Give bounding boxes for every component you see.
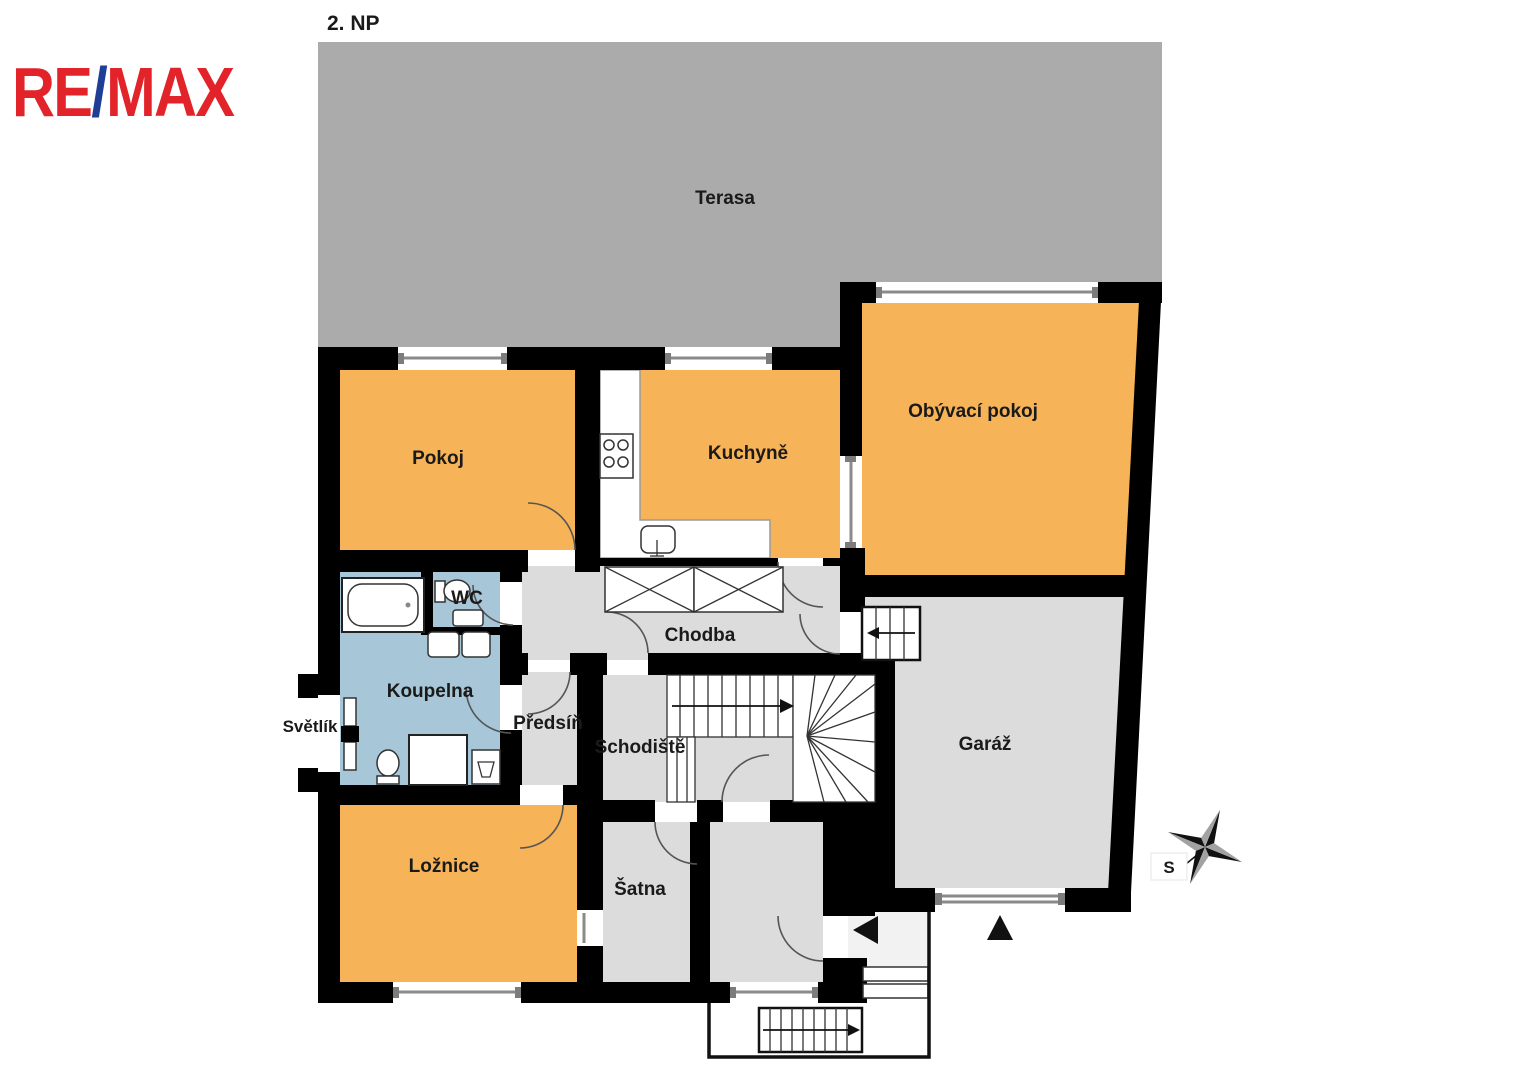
koupelna-label: Koupelna: [387, 681, 474, 702]
satna-label: Šatna: [614, 878, 666, 900]
stove-icon: [600, 434, 633, 478]
shower-icon: [409, 735, 467, 785]
brand-logo: RE/MAX: [12, 52, 235, 131]
window-obyvaci-pokoj: [876, 282, 1098, 303]
svetlik-label: Světlík: [283, 717, 338, 736]
loznice-label: Ložnice: [409, 856, 480, 877]
chodba-label: Chodba: [665, 625, 736, 646]
compass-north-label: S: [1163, 858, 1174, 877]
svg-text:RE/MAX: RE/MAX: [12, 52, 235, 131]
schodiste-label: Schodiště: [595, 737, 686, 758]
window-bottom-room: [730, 982, 818, 1003]
floor-plan-drawing: S 2. NP Terasa Pokoj Kuchyně Obývací pok…: [0, 0, 1527, 1080]
floor-title: 2. NP: [327, 12, 380, 35]
garage-door: [935, 888, 1065, 912]
floor-plan-page: S 2. NP Terasa Pokoj Kuchyně Obývací pok…: [0, 0, 1527, 1080]
garage-entry-triangle: [987, 915, 1013, 940]
garage-landing-stair: [862, 607, 920, 660]
obyvaci-pokoj-area: [862, 303, 1140, 575]
window-loznice: [393, 982, 521, 1003]
loznice-area: [340, 805, 577, 982]
kitchen-sink-icon: [641, 526, 675, 556]
garaz-label: Garáž: [959, 734, 1012, 755]
room-areas: [318, 42, 1162, 982]
wc-label: WC: [451, 588, 483, 609]
bathroom-toilet-icon: [377, 750, 399, 784]
logo-max: MAX: [106, 52, 235, 131]
wardrobe: [605, 567, 783, 612]
logo-re: RE: [12, 52, 91, 131]
predsin-label: Předsíň: [513, 713, 583, 734]
compass-star-icon: [1153, 795, 1257, 899]
kuchyne-label: Kuchyně: [708, 443, 788, 464]
obyvaci-pokoj-label: Obývací pokoj: [908, 401, 1038, 422]
entrance-markers: [853, 915, 1013, 944]
compass: S: [1151, 795, 1257, 899]
window-pokoj: [398, 347, 507, 370]
wc-sink-icon: [453, 610, 483, 626]
pokoj-label: Pokoj: [412, 448, 464, 469]
washing-machine-icon: [472, 750, 500, 784]
terasa-label: Terasa: [695, 188, 755, 209]
satna-area: [603, 822, 690, 982]
window-kuchyne: [665, 347, 772, 370]
bathroom-sinks-icon: [428, 632, 490, 657]
bathtub-icon: [342, 578, 424, 632]
window-small-interior: [577, 910, 603, 946]
window-pass-through: [840, 456, 862, 548]
